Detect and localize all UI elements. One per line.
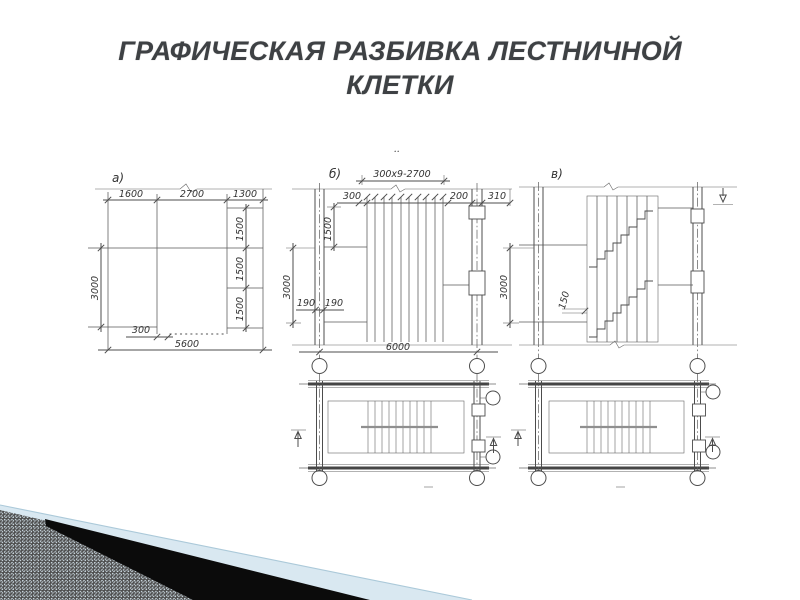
- dim-a-1600: 1600: [119, 189, 143, 200]
- panel-v-label: в): [551, 167, 563, 181]
- column-axis-marker: [706, 385, 720, 399]
- entry-arrow: [713, 188, 733, 205]
- column-axis-marker: [312, 471, 327, 486]
- column-axis-marker: [312, 359, 327, 374]
- dim-v-150: 150: [557, 290, 572, 310]
- column-axis-marker: [470, 359, 485, 374]
- dim-b-3000: 3000: [282, 275, 293, 299]
- staircase-layout-drawing: а) 1600 2700 1300 1500 1500: [0, 0, 800, 600]
- column-axis-marker: [690, 359, 705, 374]
- dim-a-1300: 1300: [233, 189, 257, 200]
- panel-a-label: а): [112, 171, 124, 185]
- panel-v-plan-treads: [580, 401, 657, 453]
- corner-decoration: [0, 505, 472, 600]
- panel-b-dots: ..: [394, 144, 400, 155]
- dim-b-190-right: 190: [325, 298, 343, 309]
- dim-a-1500-3: 1500: [235, 297, 246, 321]
- dim-b-310: 310: [488, 191, 506, 202]
- column-axis-marker: [486, 391, 500, 405]
- dim-v-3000: 3000: [499, 275, 510, 299]
- panel-b-tread-lines: [364, 194, 446, 342]
- panel-b-label: б): [329, 167, 341, 181]
- panel-b-plan-treads: [361, 401, 438, 453]
- dim-a-3000: 3000: [90, 276, 101, 300]
- column-axis-marker: [531, 471, 546, 486]
- dim-a-1500-1: 1500: [235, 217, 246, 241]
- column-axis-marker: [531, 359, 546, 374]
- panel-v-mesh-layout: в): [499, 167, 737, 374]
- presentation-slide: ГРАФИЧЕСКАЯ РАЗБИВКА ЛЕСТНИЧНОЙКЛЕТКИ а)…: [0, 0, 800, 600]
- dim-b-190-left: 190: [297, 298, 315, 309]
- dim-b-treads: 300x9-2700: [373, 169, 430, 180]
- dim-b-200: 200: [450, 191, 468, 202]
- dim-a-300: 300: [132, 325, 150, 336]
- dim-a-2700: 2700: [180, 189, 204, 200]
- panel-a-grid-plan: а) 1600 2700 1300 1500 1500: [88, 171, 272, 353]
- panel-b-flight-layout: б) .. 300x9-2700 300 200 310: [282, 144, 513, 374]
- column-axis-marker: [470, 471, 485, 486]
- dim-a-1500-2: 1500: [235, 257, 246, 281]
- entry-arrow: [511, 430, 526, 446]
- dim-b-1500: 1500: [323, 217, 334, 241]
- entry-arrow: [705, 437, 720, 452]
- dim-b-6000: 6000: [386, 342, 410, 353]
- dim-a-5600: 5600: [175, 339, 199, 350]
- column-axis-marker: [690, 471, 705, 486]
- panel-b-floor-plan: [291, 373, 501, 487]
- entry-arrow: [486, 437, 501, 453]
- dim-b-300: 300: [343, 191, 361, 202]
- entry-arrow: [291, 430, 306, 447]
- panel-v-floor-plan: [511, 373, 720, 487]
